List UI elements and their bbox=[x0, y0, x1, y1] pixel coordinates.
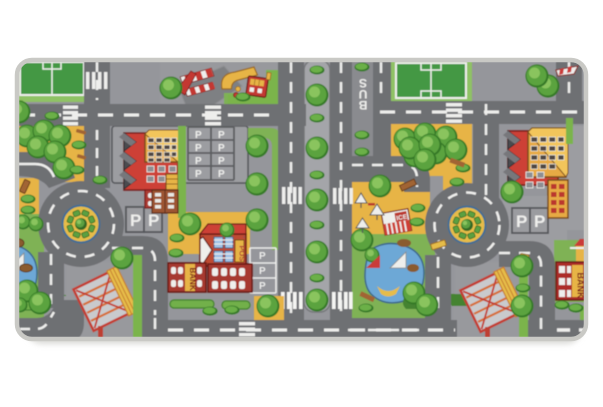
svg-text:P: P bbox=[259, 251, 266, 262]
svg-text:B: B bbox=[358, 98, 367, 112]
svg-text:P: P bbox=[195, 143, 202, 154]
svg-text:P: P bbox=[148, 211, 159, 230]
svg-text:P: P bbox=[516, 212, 527, 231]
svg-text:P: P bbox=[195, 156, 202, 167]
svg-text:P: P bbox=[259, 281, 266, 292]
svg-text:P: P bbox=[218, 143, 225, 154]
svg-text:BANK: BANK bbox=[188, 268, 197, 291]
svg-text:P: P bbox=[130, 211, 141, 230]
svg-text:POST: POST bbox=[238, 246, 247, 267]
svg-text:P: P bbox=[218, 169, 225, 180]
svg-text:P: P bbox=[195, 169, 202, 180]
svg-text:P: P bbox=[195, 130, 202, 141]
svg-text:P: P bbox=[218, 156, 225, 167]
svg-text:P: P bbox=[259, 266, 266, 277]
svg-text:P: P bbox=[218, 130, 225, 141]
svg-text:P: P bbox=[534, 212, 545, 231]
